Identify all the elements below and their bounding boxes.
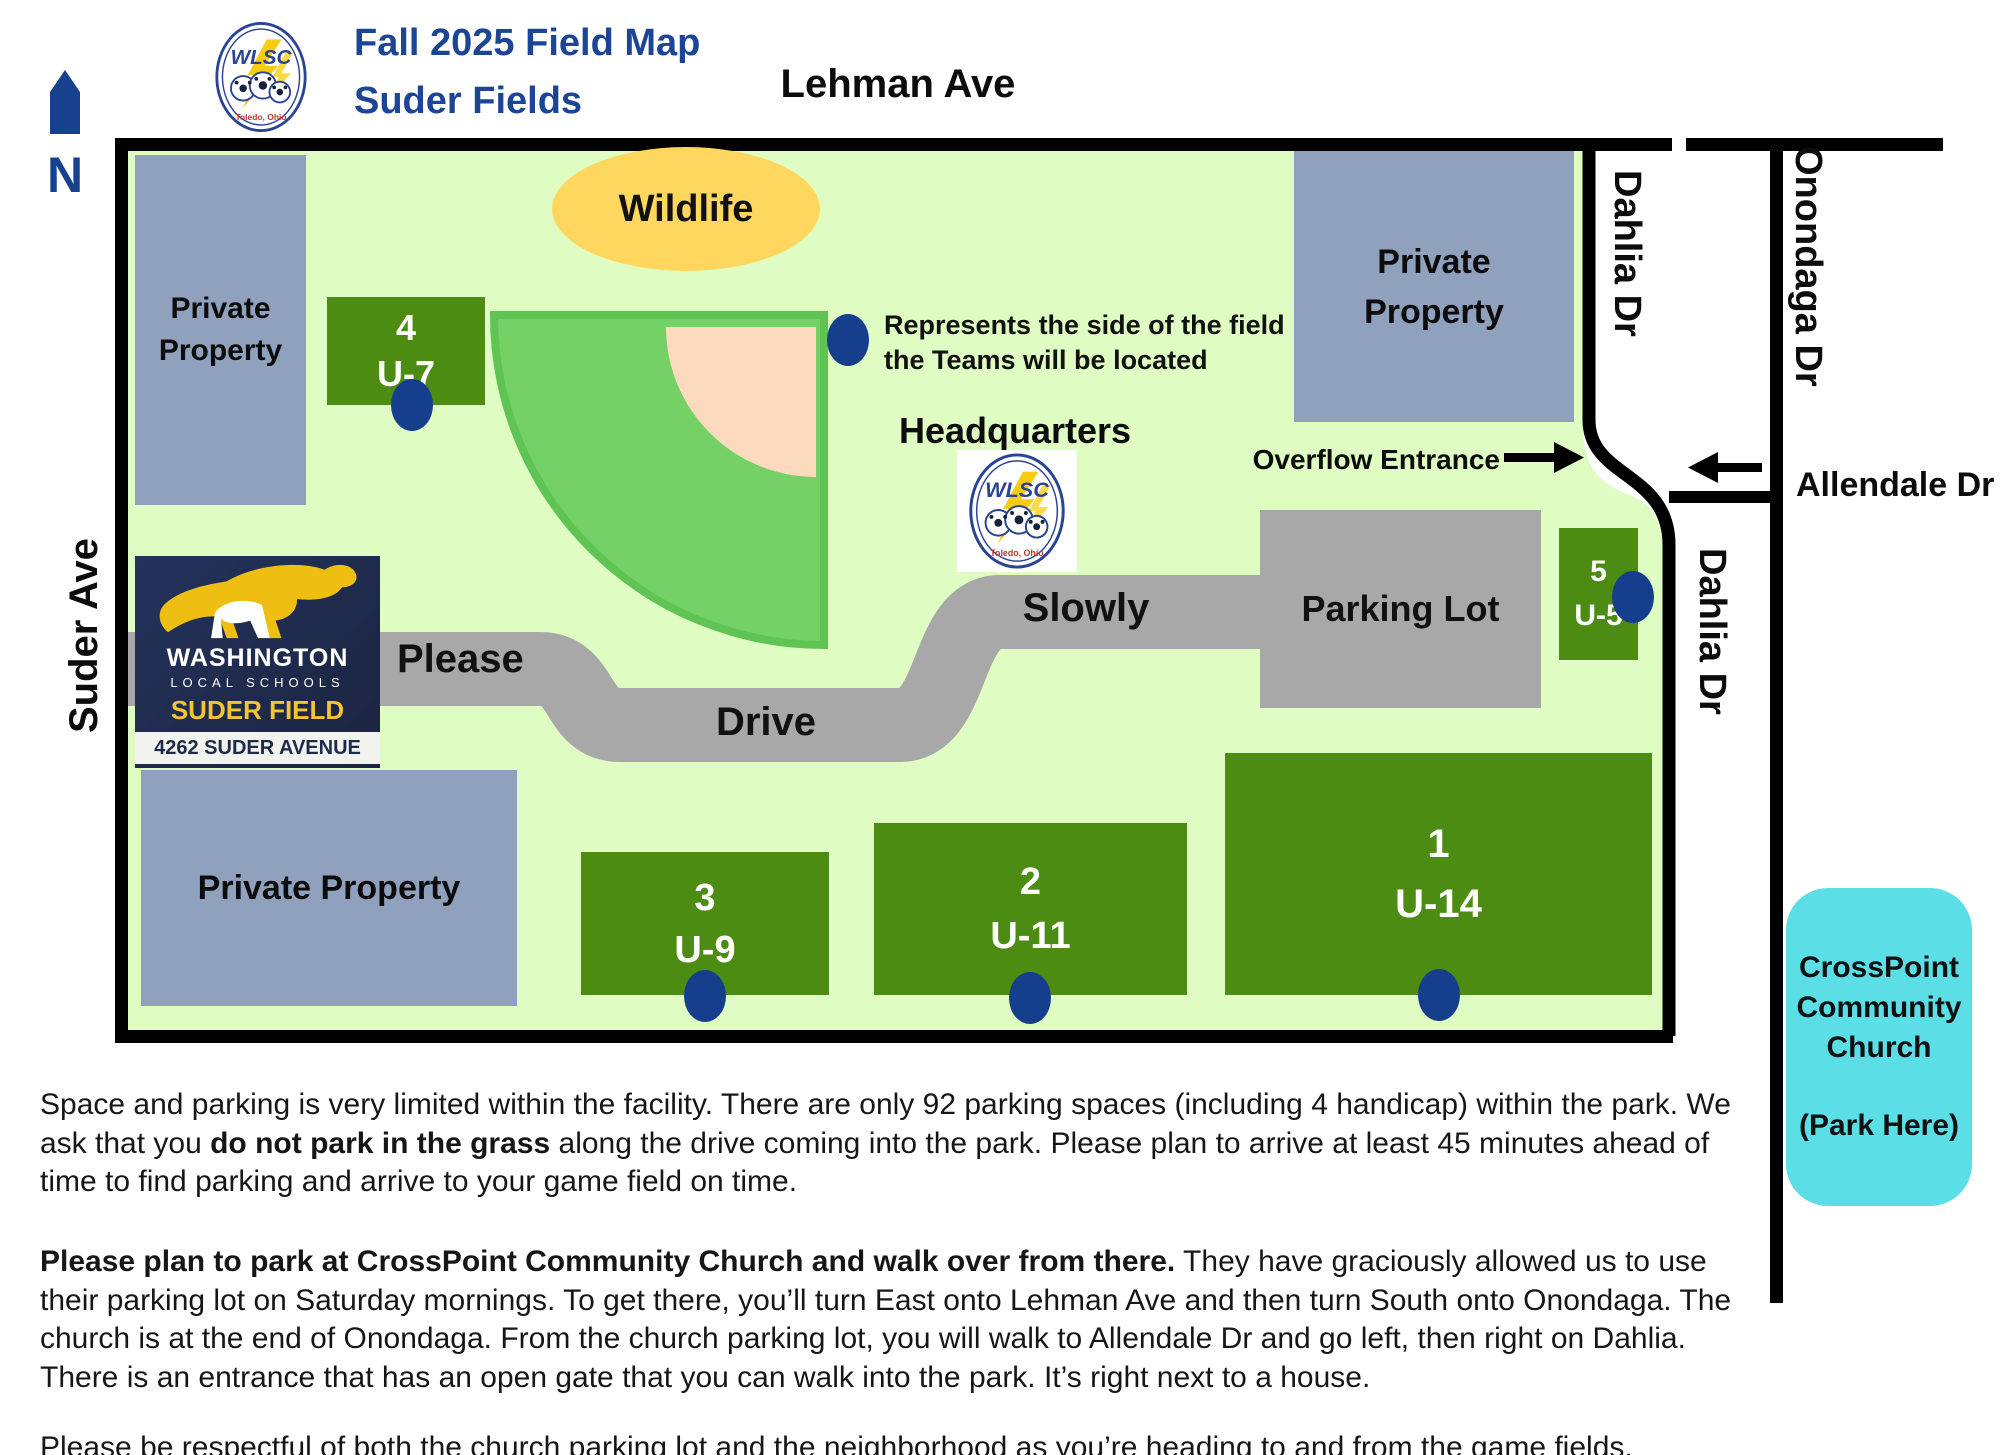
church-park-here: (Park Here) [1799,1106,1959,1146]
team-side-dot-field-5 [1612,571,1654,623]
allendale-road-line [1669,491,1770,503]
church-name-line: CrossPoint [1799,948,1959,988]
team-side-dot-field-1 [1418,969,1460,1021]
street-label-dahlia-lower: Dahlia Dr [1690,548,1733,773]
church-name-line: Community [1797,988,1962,1028]
field-2-u11: 2 U-11 [874,823,1187,995]
private-property-label: Property [159,330,282,372]
legend-line: the Teams will be located [884,343,1304,378]
note-text-bold: Please plan to park at CrossPoint Commun… [40,1245,1175,1278]
sign-field-name: SUDER FIELD [171,695,344,726]
field-age-group: U-14 [1395,874,1482,934]
road-word-slowly: Slowly [1021,586,1151,631]
note-text-bold: do not park in the grass [210,1127,550,1160]
church-parking-paragraph: Please plan to park at CrossPoint Commun… [40,1243,1770,1397]
field-number: 3 [694,872,715,924]
map-border-bottom [115,1030,1673,1043]
logo-city: Toledo, Ohio [235,112,286,122]
logo-city: Toledo, Ohio [990,548,1044,558]
sign-district: WASHINGTON [167,644,349,673]
crosspoint-church-box: CrossPoint Community Church (Park Here) [1786,888,1972,1206]
private-property-label: Private [1377,237,1490,287]
field-number: 2 [1020,855,1041,909]
north-arrow-icon [50,70,80,134]
sign-address: 4262 SUDER AVENUE [135,732,380,764]
field-age-group: U-9 [674,924,735,976]
parking-lot-label: Parking Lot [1301,588,1499,630]
headquarters-label: Headquarters [890,410,1140,452]
map-border-left [115,138,128,1043]
headquarters-logo: WLSC Toledo, Ohio [957,450,1077,572]
wlsc-logo: WLSC Toledo, Ohio [214,20,308,134]
street-label-allendale: Allendale Dr [1796,466,2001,505]
team-side-dot-field-4 [391,379,433,431]
page-subtitle: Suder Fields [354,80,582,123]
legend-dot [827,314,869,366]
team-side-legend: Represents the side of the field the Tea… [884,308,1304,378]
street-label-onondaga: Onondaga Dr [1786,146,1829,406]
wlsc-logo-icon: WLSC Toledo, Ohio [965,452,1069,570]
overflow-entrance-label: Overflow Entrance [1248,444,1500,476]
church-name-line: Church [1827,1028,1932,1068]
page-title: Fall 2025 Field Map [354,22,700,65]
street-label-suder: Suder Ave [62,533,107,733]
private-property-top-left: Private Property [135,155,306,505]
team-side-dot-field-2 [1009,972,1051,1024]
parking-note-paragraph: Space and parking is very limited within… [40,1086,1770,1202]
wildlife-label: Wildlife [619,188,754,231]
sign-subline: LOCAL SCHOOLS [170,675,344,690]
wlsc-logo-icon: WLSC Toledo, Ohio [214,20,308,134]
private-property-bottom: Private Property [141,770,517,1006]
field-1-u14: 1 U-14 [1225,753,1652,995]
suder-field-sign: WASHINGTON LOCAL SCHOOLS SUDER FIELD 426… [135,556,380,768]
street-label-dahlia-upper: Dahlia Dr [1605,170,1648,375]
logo-acronym: WLSC [985,477,1049,502]
private-property-label: Private Property [198,869,461,908]
road-word-drive: Drive [706,700,826,745]
field-age-group: U-11 [990,909,1070,963]
private-property-label: Property [1364,287,1504,337]
respect-note-paragraph: Please be respectful of both the church … [40,1429,1770,1455]
logo-acronym: WLSC [231,46,293,69]
note-text: Please be respectful of both the church … [40,1431,1633,1455]
private-property-label: Private [170,288,270,330]
parking-lot: Parking Lot [1260,510,1541,708]
legend-line: Represents the side of the field [884,308,1304,343]
field-map-page: N WLSC Toledo, Ohio Fall 2025 Field Map … [0,0,2001,1455]
field-number: 4 [396,305,416,351]
onondaga-road-line [1770,138,1783,1303]
field-number: 1 [1427,814,1449,874]
north-label: N [40,146,90,204]
private-property-top-right: Private Property [1294,151,1574,422]
cougars-logo-icon [148,556,368,646]
wildlife-area: Wildlife [552,147,820,271]
map-border-top [115,138,1672,151]
team-side-dot-field-3 [684,970,726,1022]
road-word-please: Please [397,637,507,682]
street-label-lehman: Lehman Ave [768,62,1028,107]
field-number: 5 [1590,550,1607,594]
allendale-direction-arrow [1688,452,1762,483]
